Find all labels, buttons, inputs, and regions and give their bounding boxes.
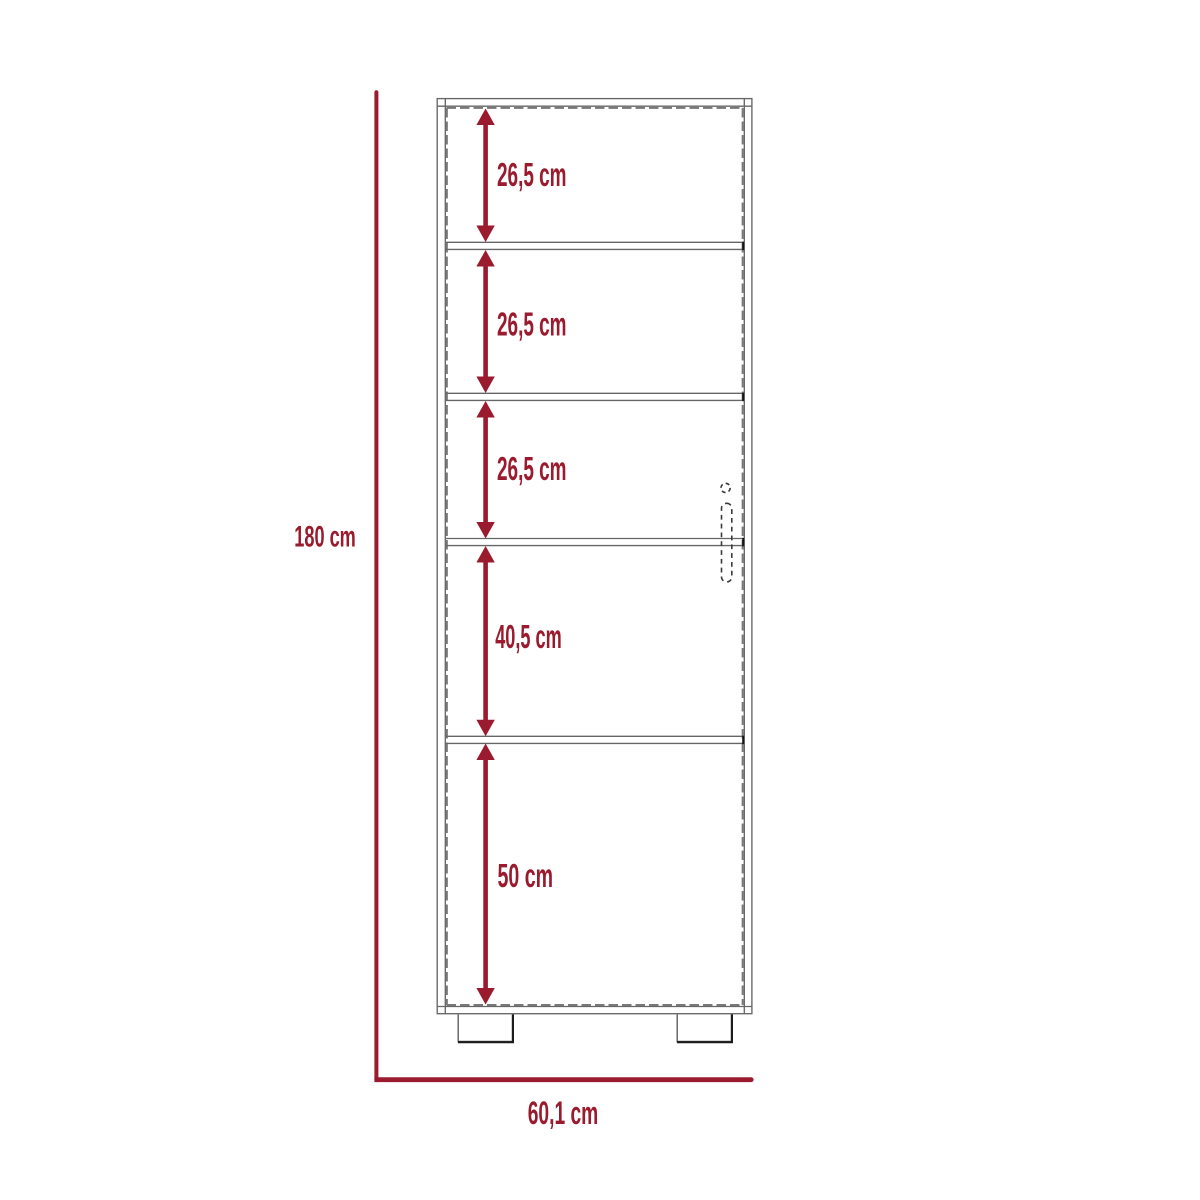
svg-text:180 cm: 180 cm	[294, 521, 356, 554]
svg-text:40,5 cm: 40,5 cm	[495, 618, 562, 655]
svg-text:26,5 cm: 26,5 cm	[497, 450, 567, 487]
svg-text:60,1 cm: 60,1 cm	[528, 1094, 599, 1131]
svg-text:26,5 cm: 26,5 cm	[497, 156, 567, 193]
svg-text:26,5 cm: 26,5 cm	[497, 306, 567, 343]
svg-text:50 cm: 50 cm	[498, 857, 554, 894]
